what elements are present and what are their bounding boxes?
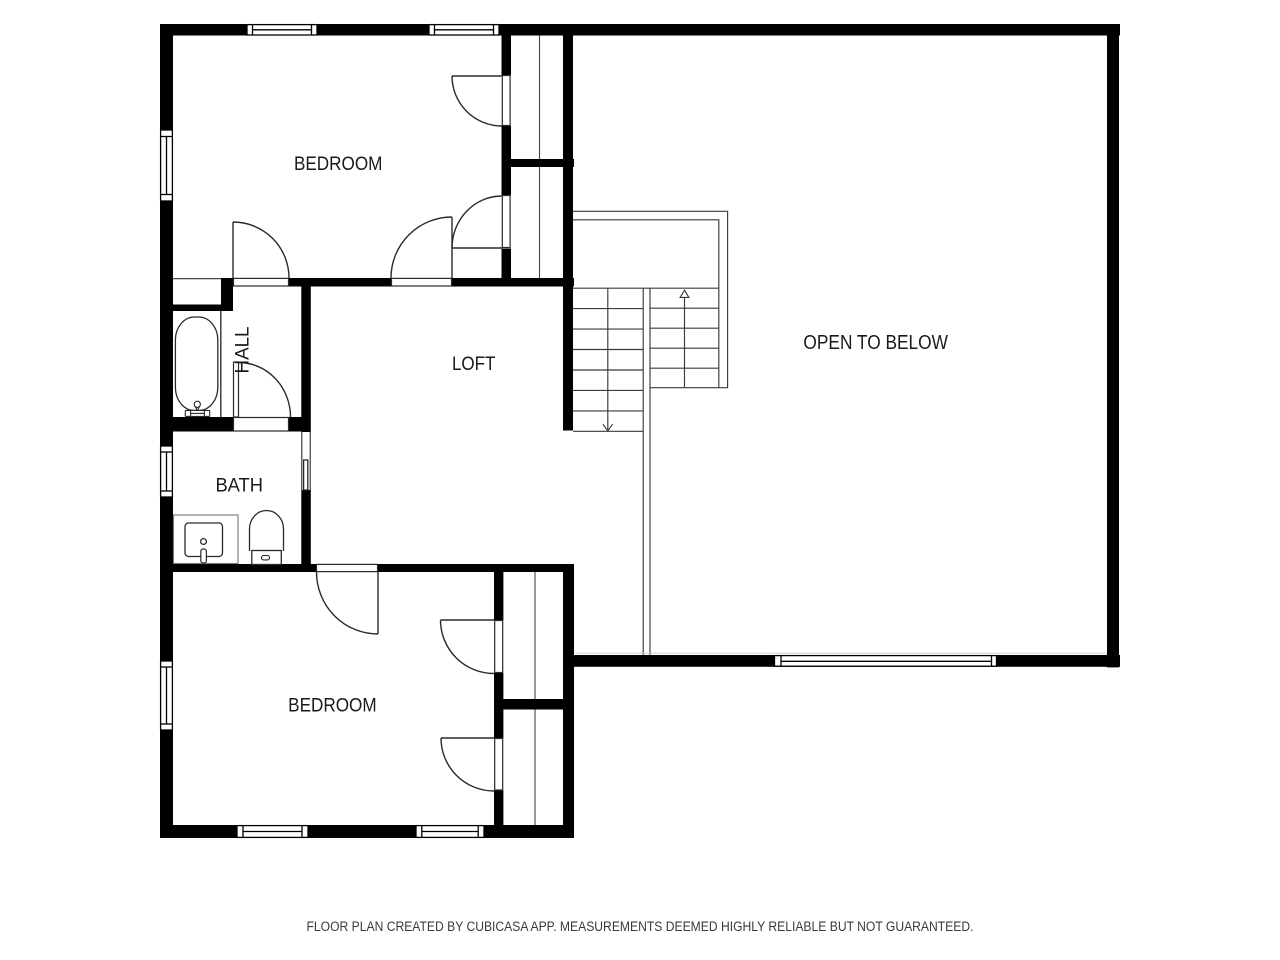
svg-text:BEDROOM: BEDROOM <box>294 154 383 175</box>
svg-text:LOFT: LOFT <box>452 354 496 375</box>
svg-text:HALL: HALL <box>233 327 254 374</box>
svg-text:BATH: BATH <box>215 476 263 497</box>
svg-text:BEDROOM: BEDROOM <box>288 696 377 717</box>
svg-text:OPEN TO BELOW: OPEN TO BELOW <box>803 332 948 354</box>
svg-text:FLOOR PLAN CREATED BY CUBICASA: FLOOR PLAN CREATED BY CUBICASA APP. MEAS… <box>307 919 974 934</box>
